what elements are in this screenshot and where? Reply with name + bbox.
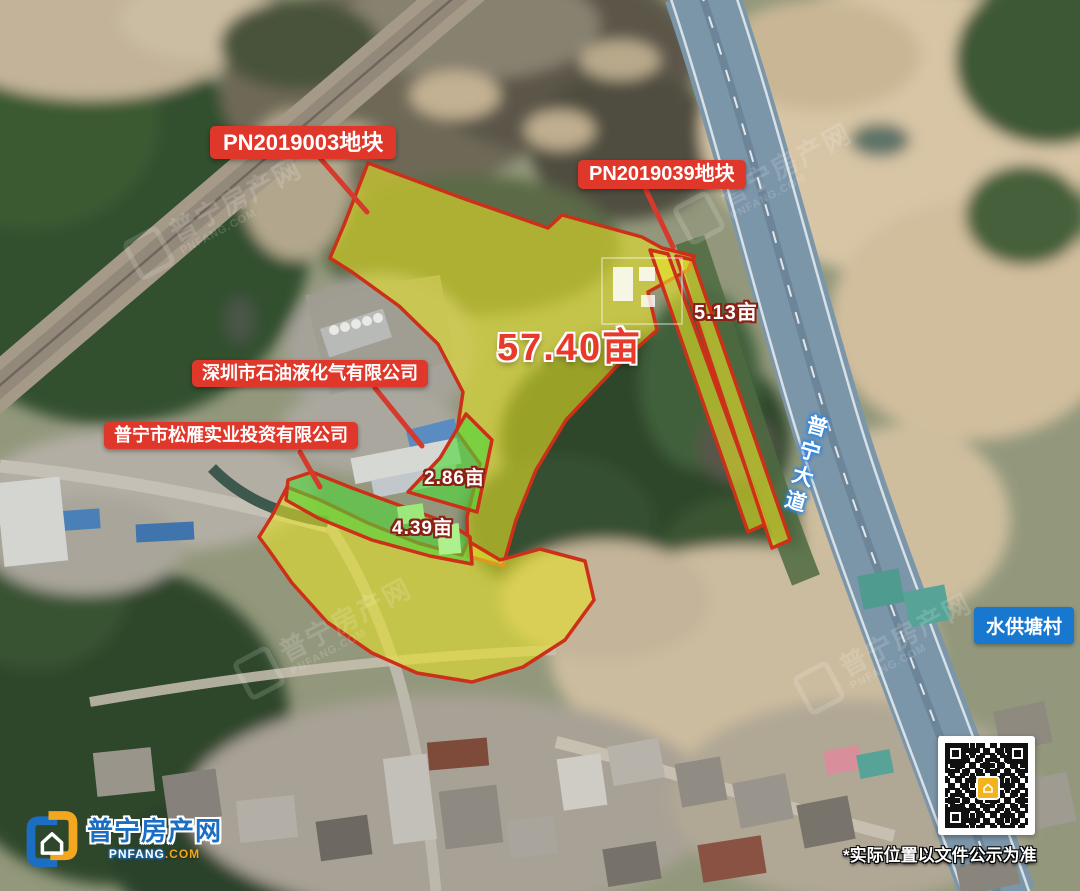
site-logo-icon xyxy=(24,809,80,871)
aerial-parcel-map: 普宁房产网 PNFANG.COM 普宁房产网 PNFANG.COM 普宁房产网 … xyxy=(0,0,1080,891)
qr-finder xyxy=(1007,743,1028,764)
area-label-green-small: 2.86亩 xyxy=(424,463,485,490)
house-icon xyxy=(982,782,994,794)
qr-finder xyxy=(945,743,966,764)
qr-center-logo xyxy=(976,776,1000,800)
parcel-label-pn2019039: PN2019039地块 xyxy=(578,160,746,189)
site-logo-name: 普宁房产网 xyxy=(87,818,222,845)
village-label: 水供塘村 xyxy=(974,607,1074,644)
company-label-shenzhen-lpg: 深圳市石油液化气有限公司 xyxy=(192,360,428,387)
parcel-label-pn2019003: PN2019003地块 xyxy=(210,126,396,159)
area-label-strip: 5.13亩 xyxy=(694,296,758,325)
qr-code xyxy=(938,736,1035,835)
site-domain-suffix: .COM xyxy=(165,847,200,861)
site-logo: 普宁房产网 PNFANG.COM xyxy=(24,809,222,871)
company-label-songyan: 普宁市松雁实业投资有限公司 xyxy=(104,422,358,449)
area-label-main: 57.40亩 xyxy=(497,316,642,371)
area-label-green-long: 4.39亩 xyxy=(392,513,453,540)
site-domain-main: PNFANG xyxy=(109,847,165,861)
site-logo-domain: PNFANG.COM xyxy=(109,847,200,861)
qr-finder xyxy=(945,807,966,828)
disclaimer-note: *实际位置以文件公示为准 xyxy=(843,841,1037,866)
